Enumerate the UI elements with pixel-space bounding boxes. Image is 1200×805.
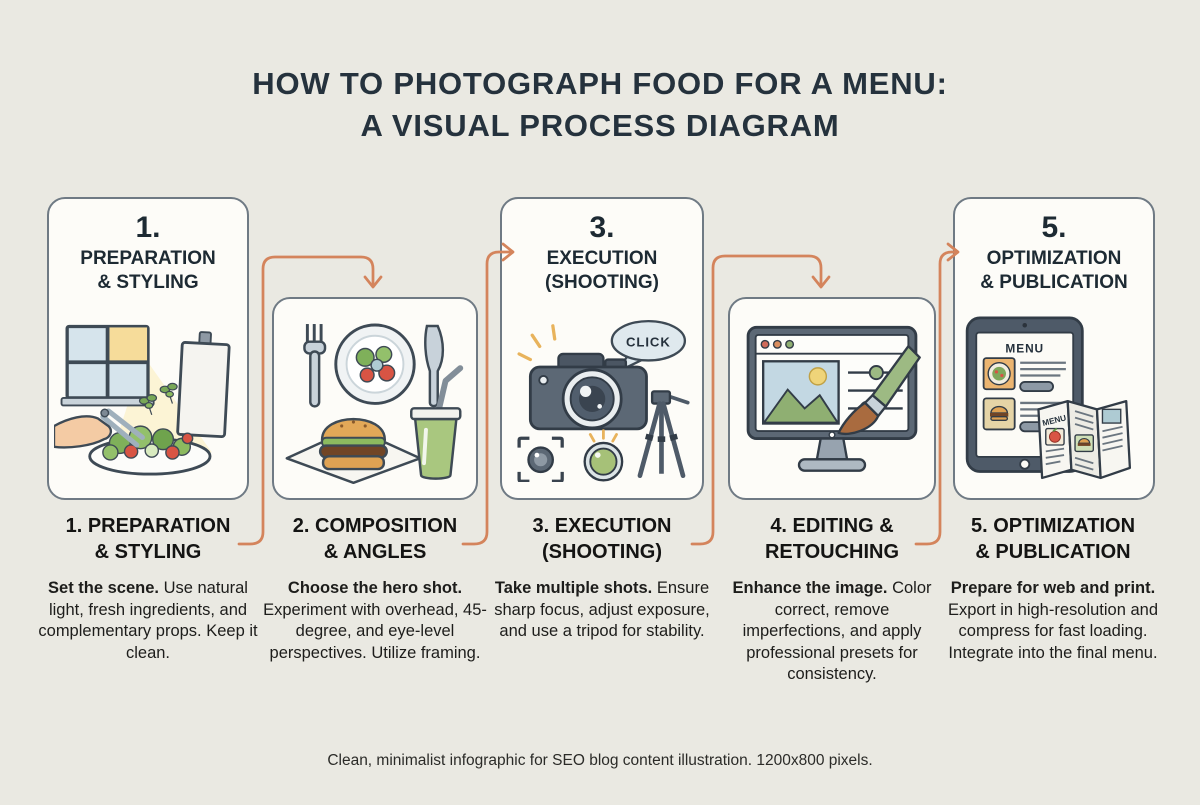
step-1-number: 1. bbox=[135, 211, 160, 245]
arrow-step3-to-step4-head bbox=[813, 277, 829, 287]
trifold-menu-icon: MENU bbox=[1038, 401, 1129, 478]
step-2-title-line1: 2. COMPOSITION bbox=[258, 514, 492, 540]
tablet-menu-label: MENU bbox=[1005, 341, 1044, 355]
footer-caption: Clean, minimalist infographic for SEO bl… bbox=[0, 752, 1200, 770]
window-icon bbox=[62, 326, 154, 405]
step-card-4 bbox=[728, 297, 936, 500]
step-5-title-line1: 5. OPTIMIZATION bbox=[947, 514, 1159, 540]
step-1-card-heading-line2: & STYLING bbox=[80, 271, 215, 295]
monitor-stand-icon bbox=[799, 438, 865, 470]
infographic-canvas: HOW TO PHOTOGRAPH FOOD FOR A MENU: A VIS… bbox=[0, 0, 1200, 805]
step-2-lead: Choose the hero shot. bbox=[288, 579, 462, 597]
page-title-line1: HOW TO PHOTOGRAPH FOOD FOR A MENU: bbox=[0, 66, 1200, 102]
focus-frame-lens-icon bbox=[519, 438, 562, 481]
step-card-2 bbox=[272, 297, 478, 500]
step-5-text-column: 5. OPTIMIZATION & PUBLICATION Prepare fo… bbox=[947, 514, 1159, 681]
step-3-lead: Take multiple shots. bbox=[495, 579, 652, 597]
step-1-lead: Set the scene. bbox=[48, 579, 159, 597]
fork-icon bbox=[304, 324, 325, 406]
step-3-title: 3. EXECUTION (SHOOTING) bbox=[492, 514, 712, 565]
step-3-card-heading-line2: (SHOOTING) bbox=[545, 271, 659, 295]
step-4-icon-area bbox=[730, 299, 934, 498]
step-1-icon-area bbox=[49, 295, 247, 498]
step-3-text-column: 3. EXECUTION (SHOOTING) Take multiple sh… bbox=[492, 514, 712, 659]
step-3-title-line2: (SHOOTING) bbox=[492, 540, 712, 566]
step-1-title-line1: 1. PREPARATION bbox=[38, 514, 258, 540]
menu-publication-icon: MENU bbox=[958, 311, 1150, 483]
step-5-body: Export in high-resolution and compress f… bbox=[948, 601, 1158, 662]
step-4-title: 4. EDITING & RETOUCHING bbox=[722, 514, 942, 565]
reflector-board-icon bbox=[178, 331, 230, 437]
step-3-icon-area: CLICK bbox=[502, 295, 702, 498]
step-5-card-heading-line1: OPTIMIZATION bbox=[980, 247, 1127, 271]
salad-plate-top-icon bbox=[336, 325, 414, 403]
step-5-card-heading: OPTIMIZATION & PUBLICATION bbox=[980, 247, 1127, 295]
step-3-title-line1: 3. EXECUTION bbox=[492, 514, 712, 540]
step-4-title-line2: RETOUCHING bbox=[722, 540, 942, 566]
step-5-title-line2: & PUBLICATION bbox=[947, 540, 1159, 566]
step-2-description: Choose the hero shot. Experiment with ov… bbox=[258, 578, 492, 664]
step-5-lead: Prepare for web and print. bbox=[951, 579, 1155, 597]
step-3-description: Take multiple shots. Ensure sharp focus,… bbox=[492, 578, 712, 643]
arrow-step1-to-step2-head bbox=[365, 277, 381, 287]
step-2-title: 2. COMPOSITION & ANGLES bbox=[258, 514, 492, 565]
step-2-icon-area bbox=[274, 299, 476, 498]
step-3-card-heading: EXECUTION (SHOOTING) bbox=[545, 247, 659, 295]
camera-shooting-icon: CLICK bbox=[506, 312, 698, 482]
step-5-description: Prepare for web and print. Export in hig… bbox=[947, 578, 1159, 664]
step-5-number: 5. bbox=[1041, 211, 1066, 245]
step-1-card-heading: PREPARATION & STYLING bbox=[80, 247, 215, 295]
step-1-card-heading-line1: PREPARATION bbox=[80, 247, 215, 271]
flash-sparks-icon bbox=[519, 325, 555, 359]
click-label: CLICK bbox=[626, 334, 671, 349]
page-title-line2: A VISUAL PROCESS DIAGRAM bbox=[0, 108, 1200, 144]
step-2-text-column: 2. COMPOSITION & ANGLES Choose the hero … bbox=[258, 514, 492, 681]
burger-icon bbox=[287, 419, 420, 483]
step-2-title-line2: & ANGLES bbox=[258, 540, 492, 566]
step-5-card-heading-line2: & PUBLICATION bbox=[980, 271, 1127, 295]
step-1-text-column: 1. PREPARATION & STYLING Set the scene. … bbox=[38, 514, 258, 681]
step-1-title-line2: & STYLING bbox=[38, 540, 258, 566]
photo-editing-icon bbox=[733, 316, 931, 482]
step-5-icon-area: MENU bbox=[955, 295, 1153, 498]
food-composition-icon bbox=[277, 308, 473, 490]
step-card-1: 1. PREPARATION & STYLING bbox=[47, 197, 249, 500]
step-1-title: 1. PREPARATION & STYLING bbox=[38, 514, 258, 565]
step-card-5: 5. OPTIMIZATION & PUBLICATION MENU bbox=[953, 197, 1155, 500]
green-lens-icon bbox=[585, 430, 622, 480]
step-1-description: Set the scene. Use natural light, fresh … bbox=[38, 578, 258, 664]
step-4-title-line1: 4. EDITING & bbox=[722, 514, 942, 540]
step-3-number: 3. bbox=[589, 211, 614, 245]
step-4-lead: Enhance the image. bbox=[733, 579, 888, 597]
step-3-card-heading-line1: EXECUTION bbox=[545, 247, 659, 271]
image-thumbnail-icon bbox=[763, 361, 838, 423]
step-4-text-column: 4. EDITING & RETOUCHING Enhance the imag… bbox=[722, 514, 942, 702]
step-card-3: 3. EXECUTION (SHOOTING) CLICK bbox=[500, 197, 704, 500]
step-5-title: 5. OPTIMIZATION & PUBLICATION bbox=[947, 514, 1159, 565]
step-2-body: Experiment with overhead, 45-degree, and… bbox=[263, 601, 487, 662]
step-4-description: Enhance the image. Color correct, remove… bbox=[722, 578, 942, 686]
food-styling-scene-icon bbox=[54, 311, 242, 483]
